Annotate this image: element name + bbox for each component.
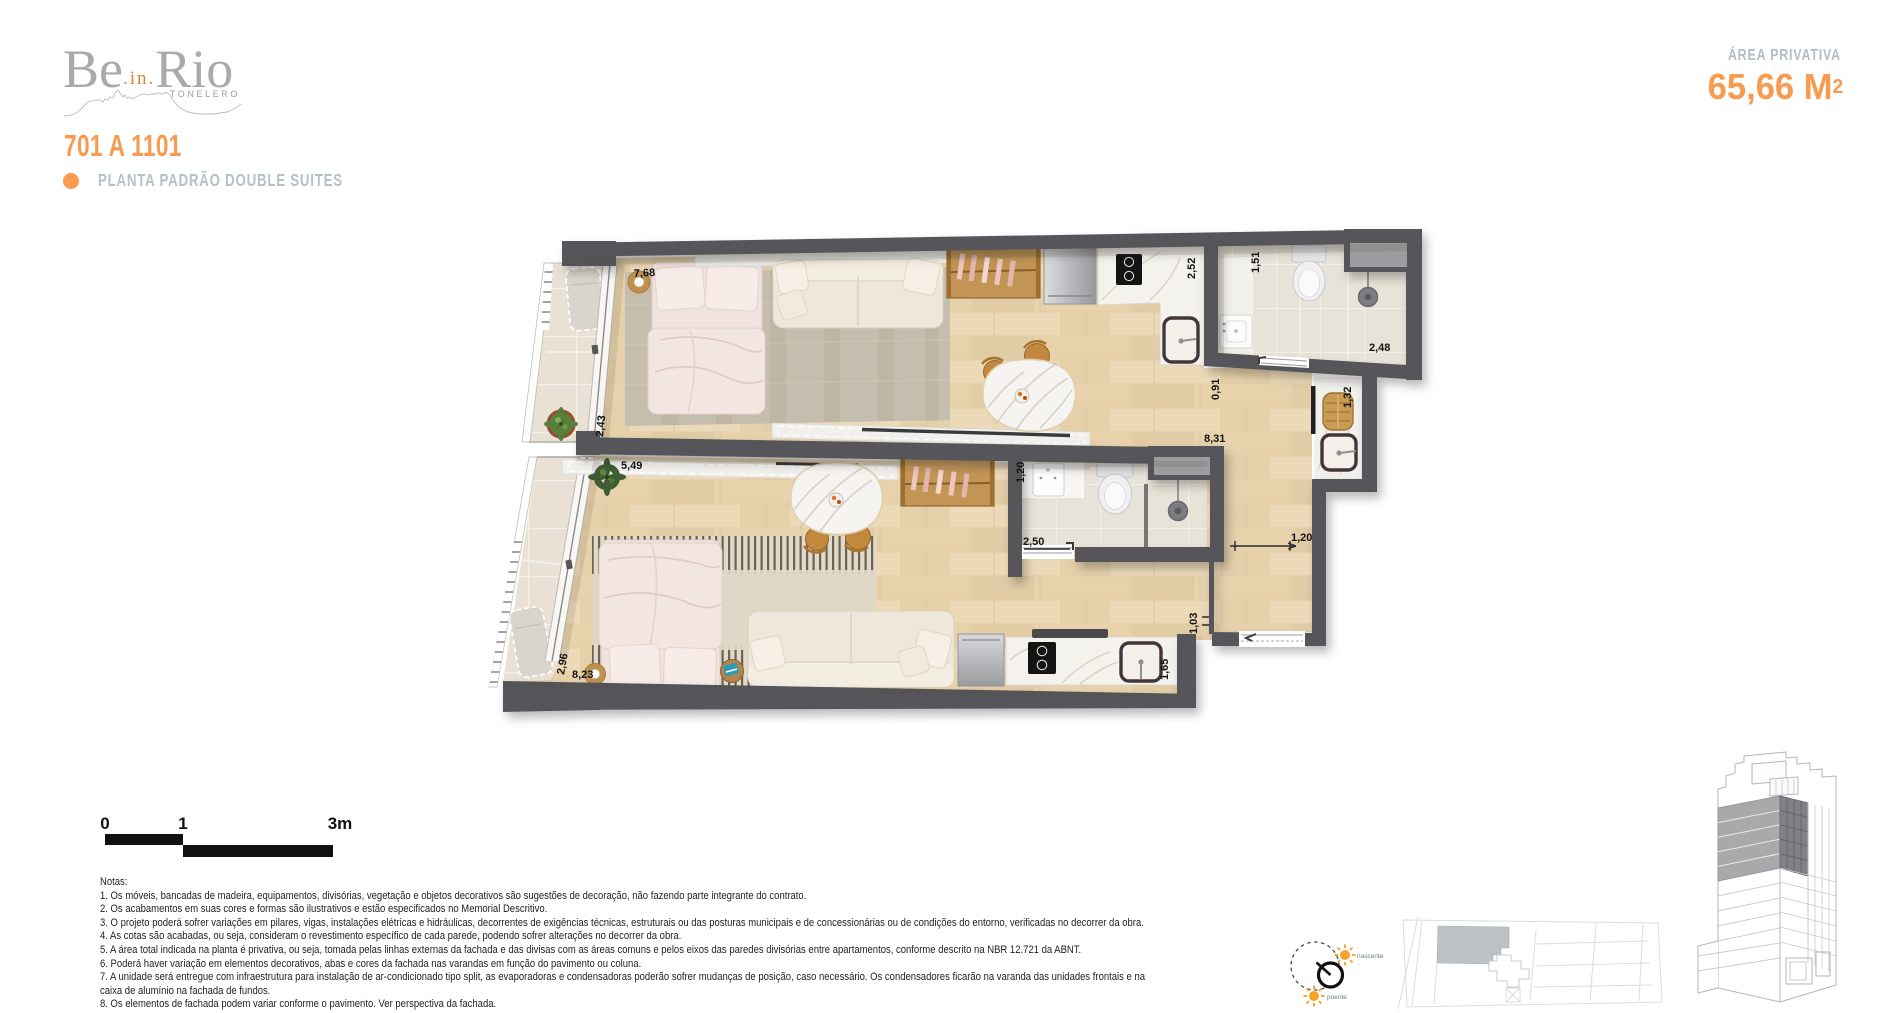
svg-text:2,52: 2,52 (1186, 258, 1198, 279)
svg-text:nascente: nascente (1357, 953, 1384, 960)
svg-text:poente: poente (1327, 994, 1347, 1001)
svg-text:7,68: 7,68 (634, 267, 656, 280)
svg-text:0,91: 0,91 (1210, 379, 1222, 400)
svg-text:1,65: 1,65 (1159, 659, 1171, 680)
svg-text:2,50: 2,50 (1023, 536, 1044, 548)
svg-text:1,20: 1,20 (1291, 532, 1312, 544)
svg-text:2,48: 2,48 (1369, 342, 1390, 354)
svg-text:0: 0 (100, 814, 109, 833)
svg-text:8,23: 8,23 (572, 669, 593, 681)
svg-text:1,51: 1,51 (1250, 252, 1262, 273)
svg-text:1,20: 1,20 (1015, 462, 1027, 483)
svg-text:5,49: 5,49 (621, 460, 642, 472)
svg-text:1,03: 1,03 (1188, 613, 1200, 634)
svg-text:2,43: 2,43 (594, 415, 608, 438)
svg-text:1: 1 (178, 814, 187, 833)
svg-text:3m: 3m (328, 814, 353, 833)
svg-text:8,31: 8,31 (1204, 433, 1225, 445)
svg-text:1,32: 1,32 (1342, 387, 1354, 408)
